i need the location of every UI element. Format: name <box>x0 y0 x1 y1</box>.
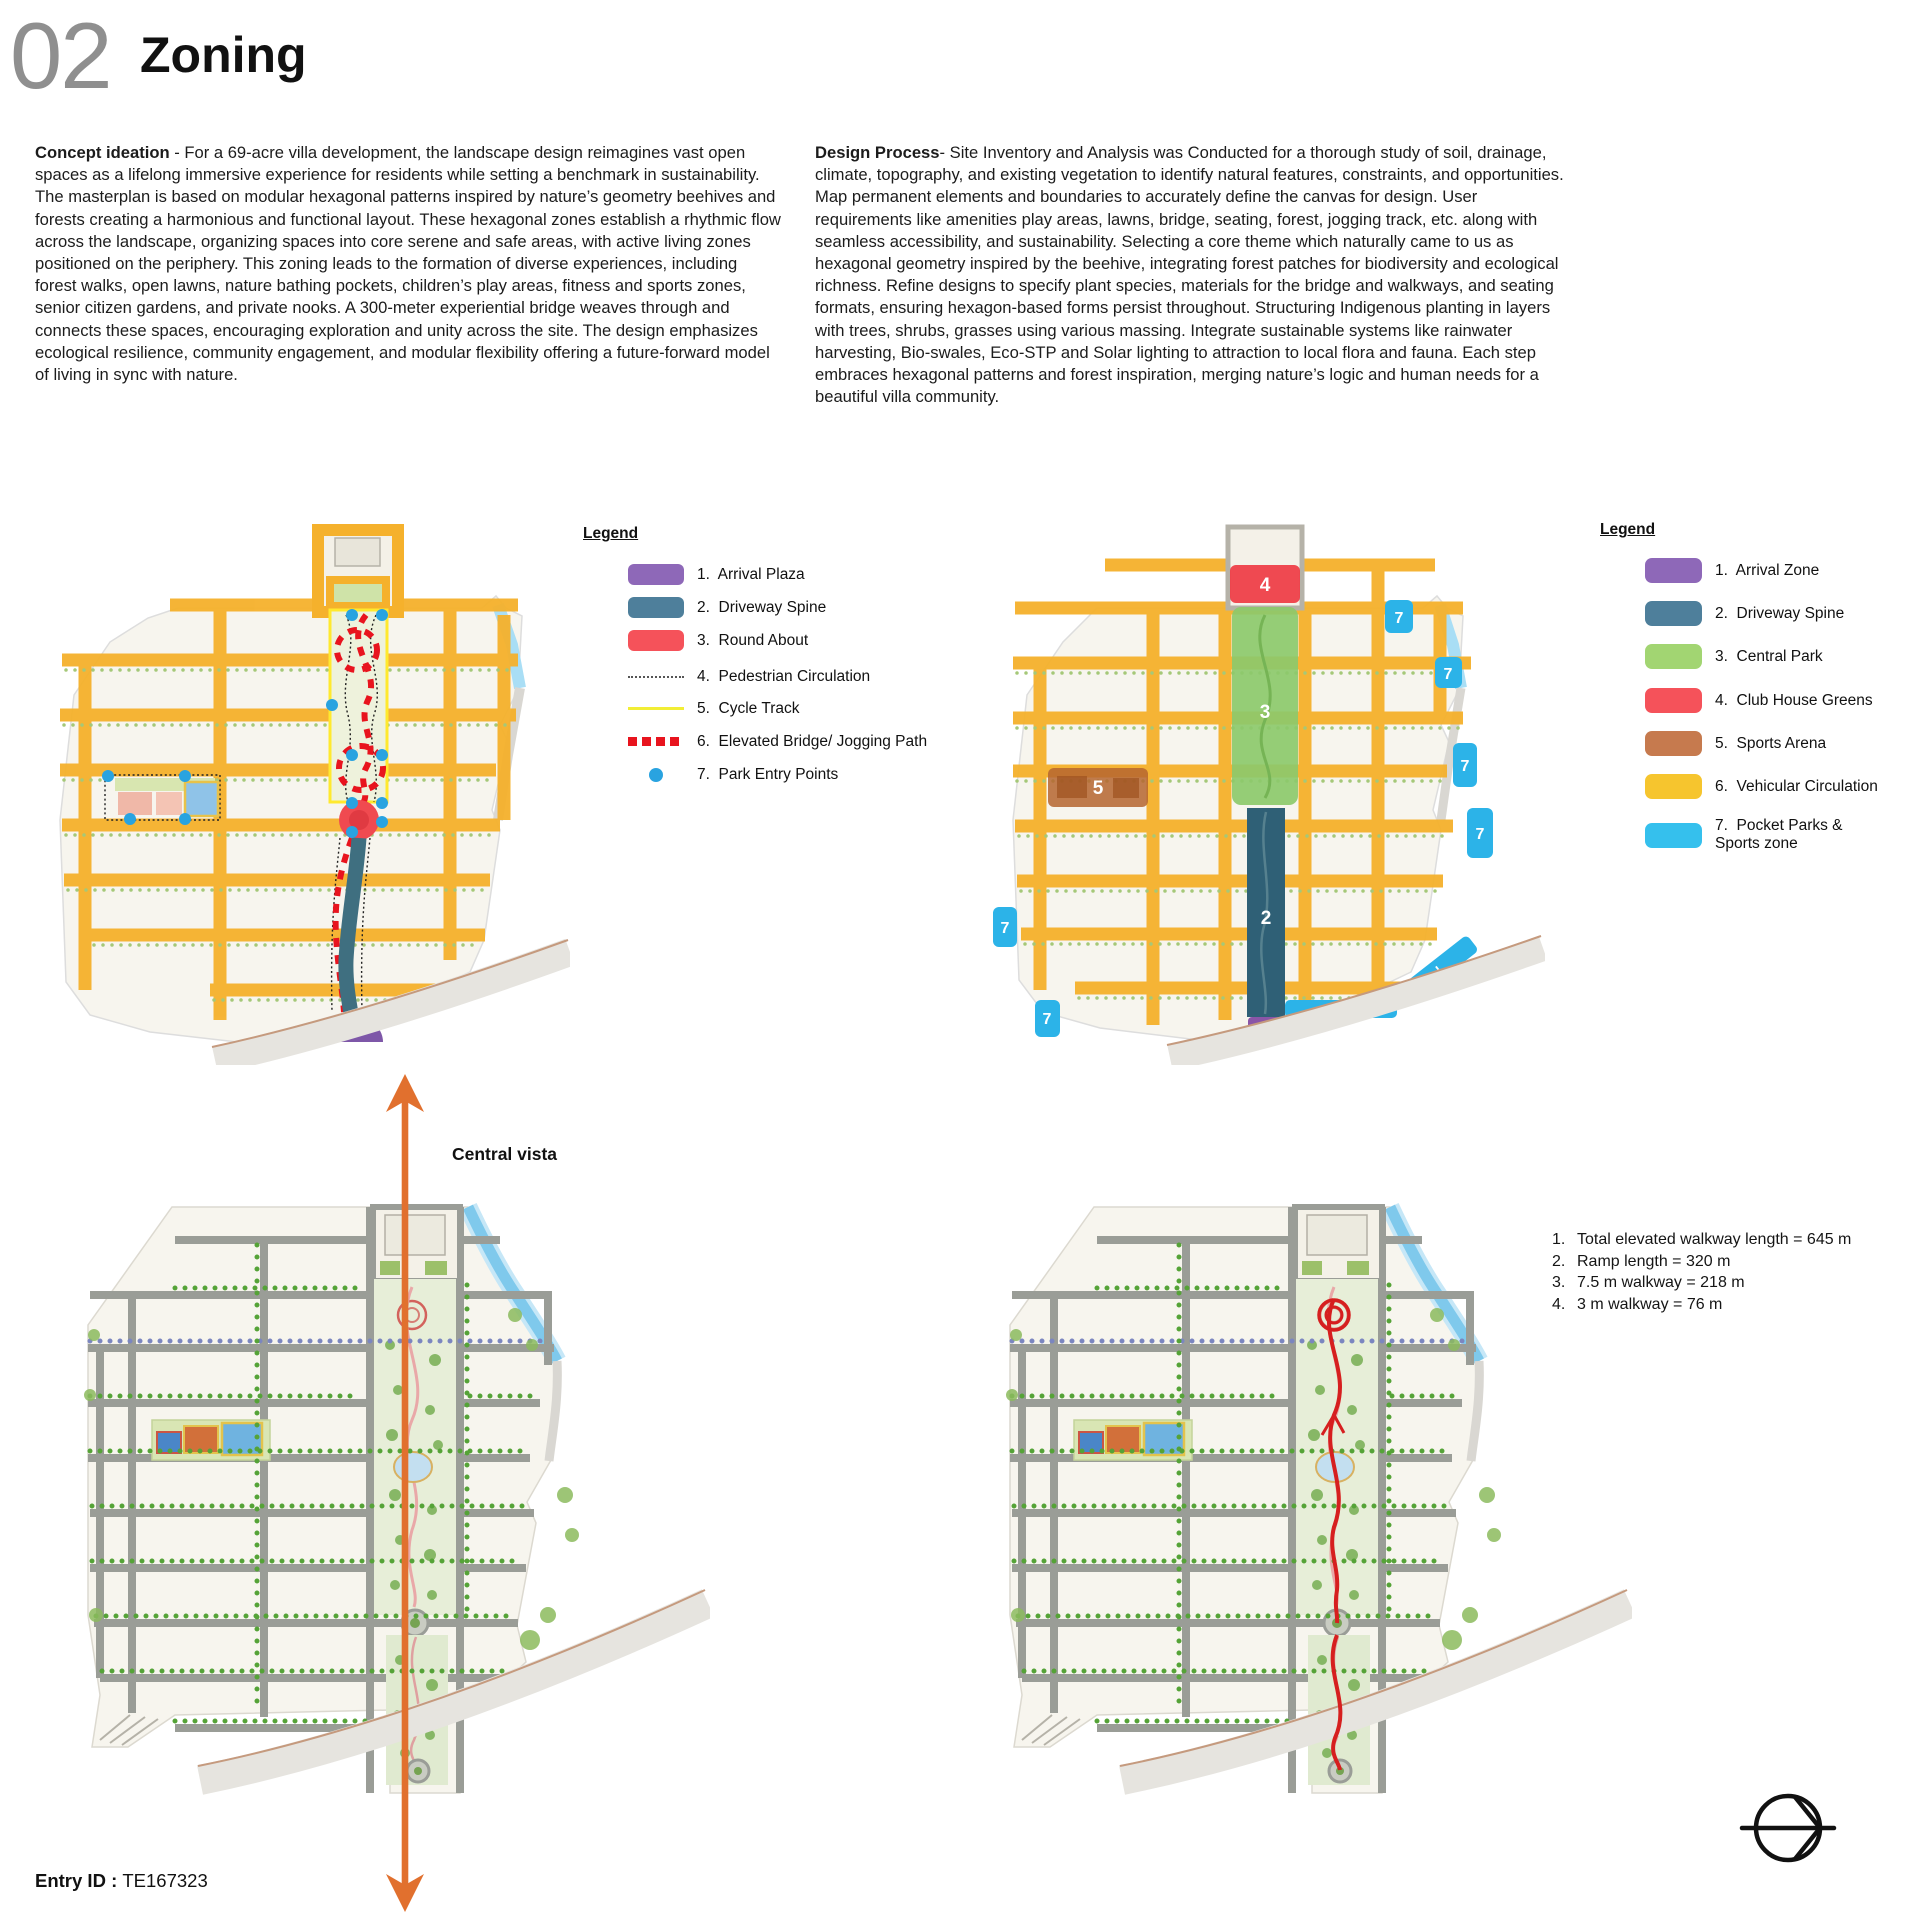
entry-id: Entry ID : TE167323 <box>35 1870 208 1892</box>
concept-lead: Concept ideation <box>35 143 170 162</box>
svg-text:7: 7 <box>1444 666 1453 683</box>
north-arrow-icon <box>1738 1776 1848 1880</box>
elevated-bridge-swatch <box>628 731 684 752</box>
note-line: 3.7.5 m walkway = 218 m <box>1552 1272 1745 1294</box>
legend-item: 5. Sports Arena <box>1645 731 1826 756</box>
svg-text:7: 7 <box>1395 610 1404 627</box>
arrival-plaza-swatch <box>628 564 684 585</box>
legend-right-title: Legend <box>1600 521 1655 539</box>
note-line: 2.Ramp length = 320 m <box>1552 1251 1730 1273</box>
note-line: 1.Total elevated walkway length = 645 m <box>1552 1229 1851 1251</box>
legend-left-title: Legend <box>583 525 638 543</box>
process-lead: Design Process <box>815 143 940 162</box>
page-title: Zoning <box>140 26 307 84</box>
club-house-garden <box>330 580 386 606</box>
concept-ideation-paragraph: Concept ideation - For a 69-acre villa d… <box>35 142 783 386</box>
vehicular-circulation-swatch <box>1645 774 1702 799</box>
map-masterplan-walkway <box>982 1195 1632 1815</box>
central-vista-arrow <box>383 1072 427 1914</box>
legend-item: 7. Park Entry Points <box>628 764 838 785</box>
concept-body: - For a 69-acre villa development, the l… <box>35 143 781 384</box>
pocket-parks-swatch <box>1645 823 1702 848</box>
legend-item: 1. Arrival Plaza <box>628 564 805 585</box>
central-vista-label: Central vista <box>452 1144 557 1165</box>
driveway-spine-swatch <box>1645 601 1702 626</box>
zone-label-driveway: 2 <box>1261 908 1272 929</box>
map-circulation-plan <box>30 520 570 1065</box>
legend-item: 6. Elevated Bridge/ Jogging Path <box>628 731 927 752</box>
club-house-greens-swatch <box>1645 688 1702 713</box>
sports-arena-court <box>1113 778 1139 798</box>
design-process-paragraph: Design Process- Site Inventory and Analy… <box>815 142 1565 408</box>
legend-item: 3. Central Park <box>1645 644 1823 669</box>
legend-item: 1. Arrival Zone <box>1645 558 1819 583</box>
svg-text:7: 7 <box>1476 826 1485 843</box>
round-about-swatch <box>628 630 684 651</box>
sports-arena-court <box>1057 776 1087 798</box>
legend-item: 3. Round About <box>628 630 808 651</box>
zone-label-sports: 5 <box>1093 778 1104 799</box>
svg-text:7: 7 <box>1001 920 1010 937</box>
map-zoning-plan: 4 3 2 1 5 7 7 7 7 7 7 7 <box>985 520 1545 1065</box>
svg-text:7: 7 <box>1461 758 1470 775</box>
legend-item: 6. Vehicular Circulation <box>1645 774 1878 799</box>
zone-label-club-house: 4 <box>1260 575 1271 596</box>
legend-item: 4. Club House Greens <box>1645 688 1873 713</box>
sports-arena-swatch <box>1645 731 1702 756</box>
pedestrian-line-swatch <box>628 666 684 687</box>
driveway-spine-swatch <box>628 597 684 618</box>
arrival-zone-swatch <box>1645 558 1702 583</box>
zone-label-central-park: 3 <box>1260 702 1271 723</box>
page-number: 02 <box>10 2 111 110</box>
club-house-footprint <box>335 538 380 566</box>
entry-id-value: TE167323 <box>122 1870 207 1891</box>
svg-text:7: 7 <box>1043 1011 1052 1028</box>
entry-id-label: Entry ID : <box>35 1870 122 1891</box>
process-body: - Site Inventory and Analysis was Conduc… <box>815 143 1564 406</box>
legend-item: 2. Driveway Spine <box>1645 601 1844 626</box>
legend-item: 5. Cycle Track <box>628 698 800 719</box>
note-line: 4.3 m walkway = 76 m <box>1552 1294 1722 1316</box>
park-entry-swatch <box>628 764 684 785</box>
cycle-track-swatch <box>628 698 684 719</box>
presentation-board: 02 Zoning Concept ideation - For a 69-ac… <box>0 0 1920 1920</box>
central-park-swatch <box>1645 644 1702 669</box>
legend-item: 4. Pedestrian Circulation <box>628 666 870 687</box>
legend-item: 7. Pocket Parks & Sports zone <box>1645 817 1890 853</box>
legend-item: 2. Driveway Spine <box>628 597 826 618</box>
